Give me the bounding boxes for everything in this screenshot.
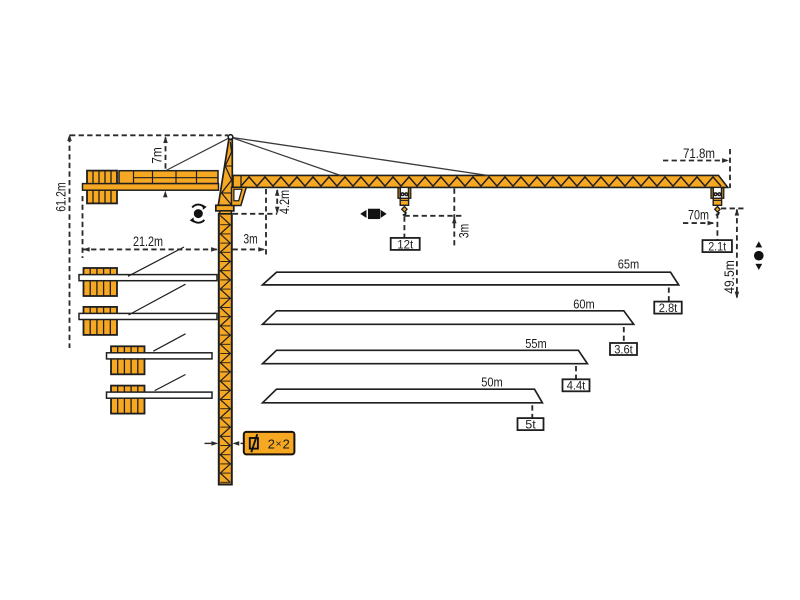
svg-text:70m: 70m xyxy=(688,208,709,223)
svg-text:3.6t: 3.6t xyxy=(614,342,633,356)
svg-text:4.4t: 4.4t xyxy=(567,379,586,393)
svg-text:61.2m: 61.2m xyxy=(54,182,69,212)
svg-text:60m: 60m xyxy=(573,297,595,312)
svg-text:2: 2 xyxy=(268,436,275,451)
svg-text:65m: 65m xyxy=(618,257,640,272)
svg-text:4.2m: 4.2m xyxy=(277,190,292,214)
svg-text:7m: 7m xyxy=(149,147,164,164)
svg-text:2: 2 xyxy=(283,436,290,451)
svg-text:2.1t: 2.1t xyxy=(708,239,727,253)
svg-text:21.2m: 21.2m xyxy=(133,234,163,249)
svg-text:55m: 55m xyxy=(525,336,547,351)
svg-text:71.8m: 71.8m xyxy=(683,146,715,161)
svg-text:3m: 3m xyxy=(457,224,472,238)
svg-text:2.8t: 2.8t xyxy=(659,301,678,315)
svg-text:49.5m: 49.5m xyxy=(722,260,737,294)
svg-text:3m: 3m xyxy=(243,231,257,246)
svg-text:5t: 5t xyxy=(525,417,536,431)
svg-text:50m: 50m xyxy=(481,374,503,389)
svg-text:12t: 12t xyxy=(397,237,414,251)
svg-text:×: × xyxy=(276,438,282,450)
